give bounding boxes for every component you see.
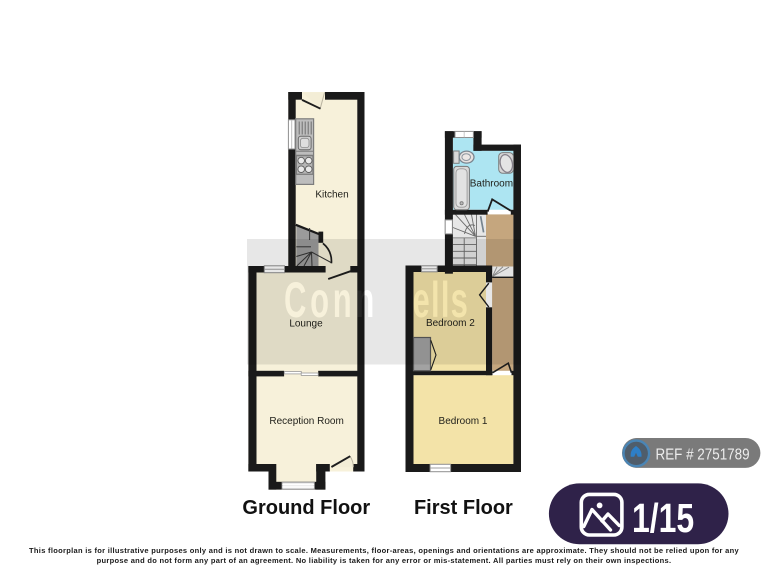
svg-text:Bedroom 1: Bedroom 1 xyxy=(439,416,488,427)
svg-text:purpose and do not form any pa: purpose and do not form any part of an a… xyxy=(97,556,672,565)
svg-text:ells: ells xyxy=(413,271,470,327)
svg-text:Ground Floor: Ground Floor xyxy=(242,497,370,519)
svg-text:This floorplan is for illustra: This floorplan is for illustrative purpo… xyxy=(29,546,739,555)
svg-text:Kitchen: Kitchen xyxy=(315,190,348,201)
svg-text:Conn: Conn xyxy=(284,271,378,327)
svg-text:1/15: 1/15 xyxy=(632,495,694,541)
svg-text:Reception Room: Reception Room xyxy=(269,416,343,427)
svg-text:First Floor: First Floor xyxy=(414,497,513,519)
svg-text:REF # 2751789: REF # 2751789 xyxy=(656,446,750,463)
svg-text:Bathroom: Bathroom xyxy=(470,179,513,190)
